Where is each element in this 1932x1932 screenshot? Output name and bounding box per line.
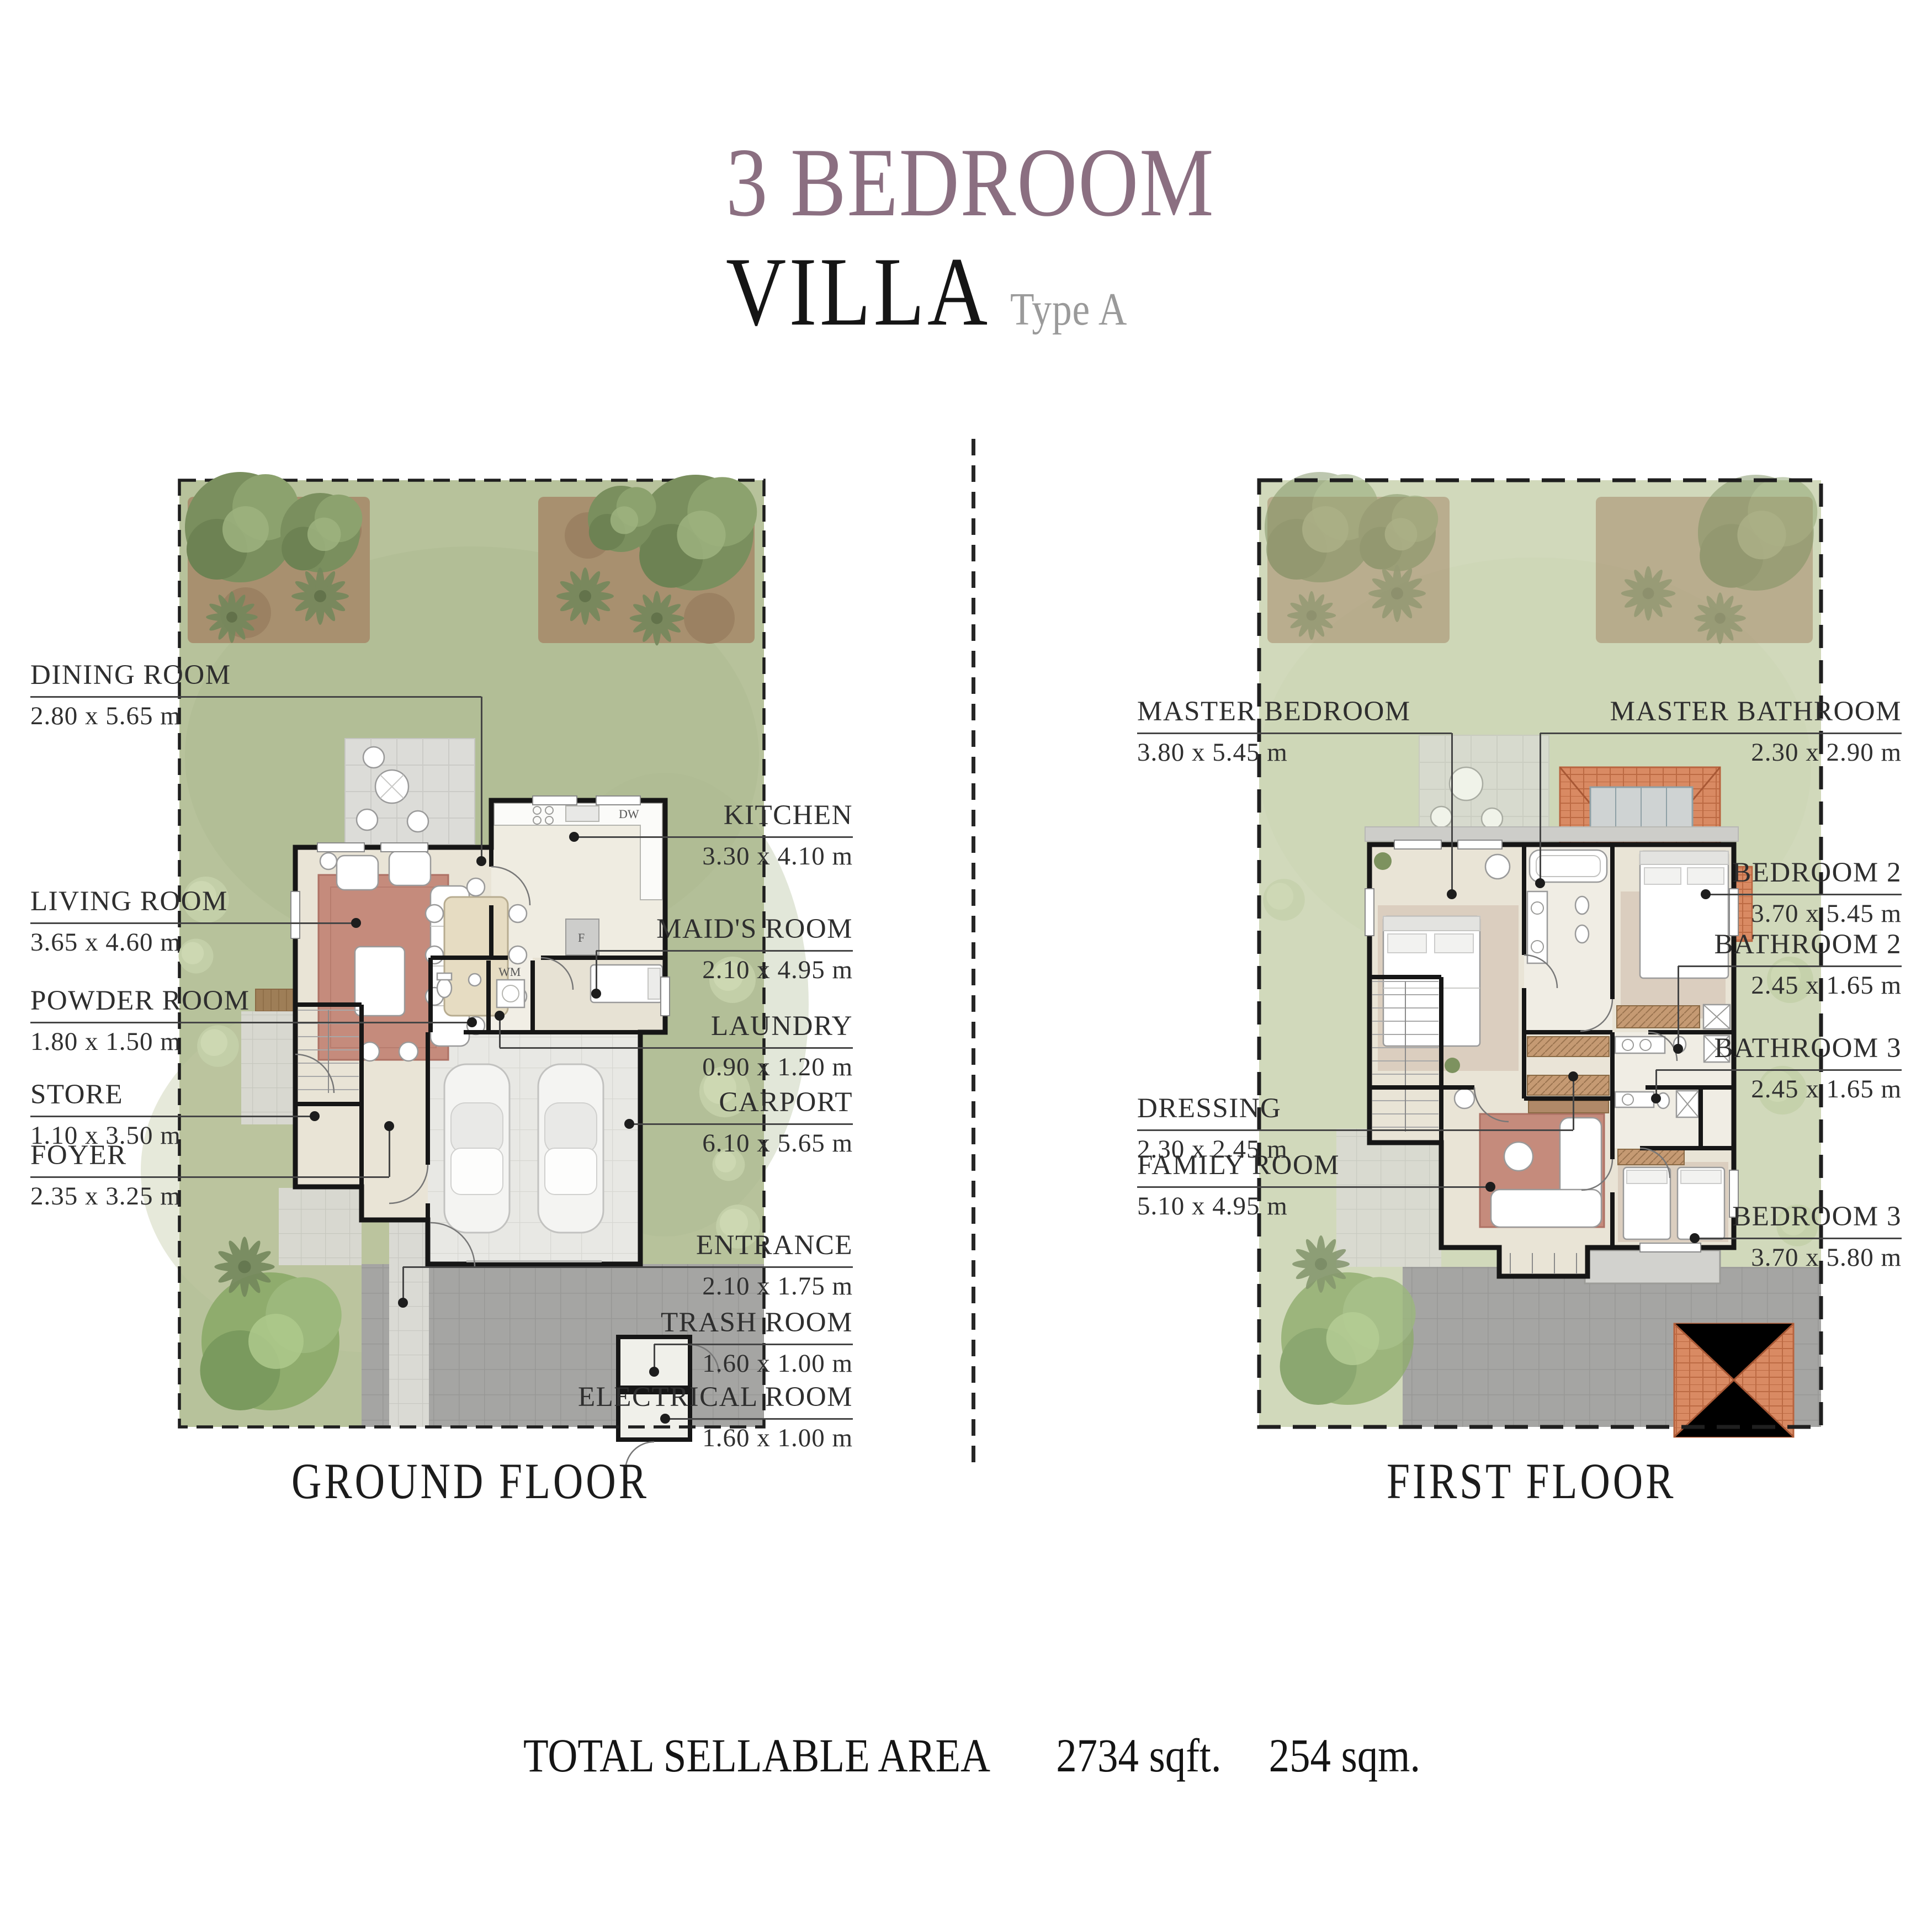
total-sellable-area: TOTAL SELLABLE AREA 2734 sqft. 254 sqm. xyxy=(523,1728,1420,1783)
room-dimensions: 3.65 x 4.60 m xyxy=(30,928,181,957)
room-name: DRESSING xyxy=(1137,1092,1281,1124)
room-name: DINING ROOM xyxy=(30,659,231,691)
leader-dot xyxy=(495,1011,505,1021)
leader-rule xyxy=(1695,1238,1902,1239)
leader-elbow xyxy=(481,697,482,861)
room-label-master-bedroom: MASTER BEDROOM3.80 x 5.45 m xyxy=(1137,696,1452,767)
leader-dot xyxy=(467,1017,477,1027)
room-dimensions: 3.30 x 4.10 m xyxy=(702,842,853,871)
leader-dot xyxy=(1535,878,1545,888)
room-dimensions: 1.60 x 1.00 m xyxy=(702,1424,853,1452)
room-label-powder-room: POWDER ROOM1.80 x 1.50 m xyxy=(30,985,472,1056)
total-area-label: TOTAL SELLABLE AREA xyxy=(523,1728,990,1783)
wardrobe xyxy=(1527,1037,1609,1057)
room-name: BEDROOM 2 xyxy=(1732,857,1902,889)
room-label-laundry: LAUNDRY0.90 x 1.20 m xyxy=(500,1010,853,1081)
ground-patio xyxy=(345,739,475,845)
room-name: KITCHEN xyxy=(724,799,853,831)
room-label-kitchen: KITCHEN3.30 x 4.10 m xyxy=(574,799,853,871)
armchair xyxy=(337,856,378,890)
room-name: POWDER ROOM xyxy=(30,985,250,1017)
caption-first-floor: FIRST FLOOR xyxy=(1387,1452,1676,1510)
washing-machine xyxy=(497,980,524,1007)
room-name: FOYER xyxy=(30,1139,127,1171)
room-dimensions: 1.80 x 1.50 m xyxy=(30,1027,181,1056)
car xyxy=(538,1064,603,1233)
room-label-living-room: LIVING ROOM3.65 x 4.60 m xyxy=(30,885,356,957)
room-label-maid-s-room: MAID'S ROOM2.10 x 4.95 m xyxy=(596,913,853,984)
room-dimensions: 6.10 x 5.65 m xyxy=(702,1129,853,1158)
room-dimensions: 5.10 x 4.95 m xyxy=(1137,1192,1288,1220)
total-area-sqm: 254 sqm. xyxy=(1269,1728,1420,1783)
leader-dot xyxy=(310,1111,320,1121)
room-label-dining-room: DINING ROOM2.80 x 5.65 m xyxy=(30,659,481,730)
room-label-trash-room: TRASH ROOM1.60 x 1.00 m xyxy=(654,1307,853,1378)
room-name: ELECTRICAL ROOM xyxy=(578,1381,853,1413)
leader-dot xyxy=(1690,1233,1700,1243)
leader-dot xyxy=(476,856,486,866)
armchair xyxy=(389,851,431,885)
room-label-bathroom-2: BATHROOM 22.45 x 1.65 m xyxy=(1678,928,1902,1000)
washing-machine-label: WM xyxy=(498,965,521,979)
room-dimensions: 3.80 x 5.45 m xyxy=(1137,738,1288,767)
title-block: 3 BEDROOM VILLA Type A xyxy=(726,126,1301,344)
leader-rule xyxy=(1656,1069,1902,1071)
room-dimensions: 3.70 x 5.45 m xyxy=(1751,899,1902,928)
room-name: BATHROOM 3 xyxy=(1715,1032,1902,1064)
room-label-electrical-room: ELECTRICAL ROOM1.60 x 1.00 m xyxy=(665,1381,853,1452)
leader-rule xyxy=(574,836,853,838)
title-type: Type A xyxy=(1010,283,1127,336)
leader-dot xyxy=(624,1119,634,1129)
leader-rule xyxy=(30,1116,315,1117)
room-dimensions: 1.60 x 1.00 m xyxy=(702,1349,853,1378)
floors-divider xyxy=(972,439,975,1463)
leader-rule xyxy=(665,1418,853,1420)
total-area-sqft: 2734 sqft. xyxy=(1056,1728,1221,1783)
leader-rule xyxy=(1706,894,1902,895)
leader-dot xyxy=(591,989,601,999)
leader-rule xyxy=(629,1123,853,1125)
room-dimensions: 2.30 x 2.90 m xyxy=(1751,738,1902,767)
leader-rule xyxy=(1678,965,1902,967)
leader-rule xyxy=(403,1266,853,1268)
room-name: BATHROOM 2 xyxy=(1715,928,1902,960)
leader-rule xyxy=(1540,733,1902,734)
room-label-entrance: ENTRANCE2.10 x 1.75 m xyxy=(403,1229,853,1301)
room-name: CARPORT xyxy=(719,1086,853,1118)
leader-rule xyxy=(30,922,356,924)
leader-elbow xyxy=(1451,733,1453,894)
toilet xyxy=(1575,896,1589,914)
room-label-bedroom-2: BEDROOM 23.70 x 5.45 m xyxy=(1706,857,1902,928)
room-dimensions: 2.10 x 4.95 m xyxy=(702,956,853,984)
room-name: STORE xyxy=(30,1079,123,1111)
leader-dot xyxy=(1701,889,1711,899)
leader-elbow xyxy=(1573,1076,1574,1130)
leader-dot xyxy=(660,1414,670,1424)
room-name: FAMILY ROOM xyxy=(1137,1149,1340,1181)
leader-rule xyxy=(30,696,481,698)
room-name: MASTER BATHROOM xyxy=(1610,696,1902,728)
leader-dot xyxy=(569,832,579,842)
floor-lamp xyxy=(320,853,337,869)
room-label-foyer: FOYER2.35 x 3.25 m xyxy=(30,1139,389,1211)
leader-rule xyxy=(596,950,853,952)
title-villa: VILLA xyxy=(726,239,990,344)
room-dimensions: 2.45 x 1.65 m xyxy=(1751,971,1902,1000)
room-dimensions: 2.10 x 1.75 m xyxy=(702,1272,853,1301)
vanity xyxy=(1615,1092,1654,1107)
leader-dot xyxy=(1485,1182,1495,1192)
leader-rule xyxy=(1137,1186,1490,1188)
room-name: TRASH ROOM xyxy=(661,1307,853,1339)
caption-ground-floor: GROUND FLOOR xyxy=(291,1452,649,1510)
bathtub xyxy=(1530,850,1607,882)
leader-elbow xyxy=(596,951,597,994)
leader-rule xyxy=(30,1176,389,1178)
leader-elbow xyxy=(389,1126,390,1177)
room-name: LIVING ROOM xyxy=(30,885,228,917)
room-dimensions: 2.45 x 1.65 m xyxy=(1751,1075,1902,1103)
leader-elbow xyxy=(1540,733,1541,883)
leader-rule xyxy=(1137,1129,1573,1131)
brochure-page: 3 BEDROOM VILLA Type A xyxy=(0,0,1932,1932)
wardrobe xyxy=(1617,1006,1700,1028)
leader-rule xyxy=(30,1022,472,1023)
room-name: LAUNDRY xyxy=(711,1010,853,1042)
room-dimensions: 0.90 x 1.20 m xyxy=(702,1053,853,1081)
leader-dot xyxy=(351,918,361,928)
room-label-bathroom-3: BATHROOM 32.45 x 1.65 m xyxy=(1656,1032,1902,1103)
leader-rule xyxy=(654,1344,853,1345)
title-line2: VILLA Type A xyxy=(726,239,1214,344)
fridge-label: F xyxy=(578,931,585,944)
basin xyxy=(469,974,481,986)
room-dimensions: 2.80 x 5.65 m xyxy=(30,702,181,730)
leader-rule xyxy=(1137,733,1452,734)
leader-dot xyxy=(649,1367,659,1377)
leader-dot xyxy=(1651,1094,1661,1103)
bidet xyxy=(1575,925,1589,943)
room-label-carport: CARPORT6.10 x 5.65 m xyxy=(629,1086,853,1158)
car xyxy=(444,1064,509,1233)
corner-sofa xyxy=(1491,1190,1601,1227)
room-label-master-bathroom: MASTER BATHROOM2.30 x 2.90 m xyxy=(1540,696,1902,767)
page-title: 3 BEDROOM xyxy=(726,126,1214,239)
leader-dot xyxy=(1447,889,1457,899)
room-dimensions: 2.35 x 3.25 m xyxy=(30,1182,181,1211)
room-name: BEDROOM 3 xyxy=(1732,1201,1902,1233)
room-label-family-room: FAMILY ROOM5.10 x 4.95 m xyxy=(1137,1149,1490,1220)
room-dimensions: 3.70 x 5.80 m xyxy=(1751,1243,1902,1272)
leader-dot xyxy=(398,1298,408,1308)
leader-dot xyxy=(384,1121,394,1131)
wardrobe xyxy=(1618,1149,1684,1165)
room-name: MAID'S ROOM xyxy=(656,913,853,945)
room-name: MASTER BEDROOM xyxy=(1137,696,1411,728)
room-name: ENTRANCE xyxy=(696,1229,853,1261)
leader-rule xyxy=(500,1047,853,1049)
leader-dot xyxy=(1568,1071,1578,1081)
room-label-bedroom-3: BEDROOM 33.70 x 5.80 m xyxy=(1695,1201,1902,1272)
